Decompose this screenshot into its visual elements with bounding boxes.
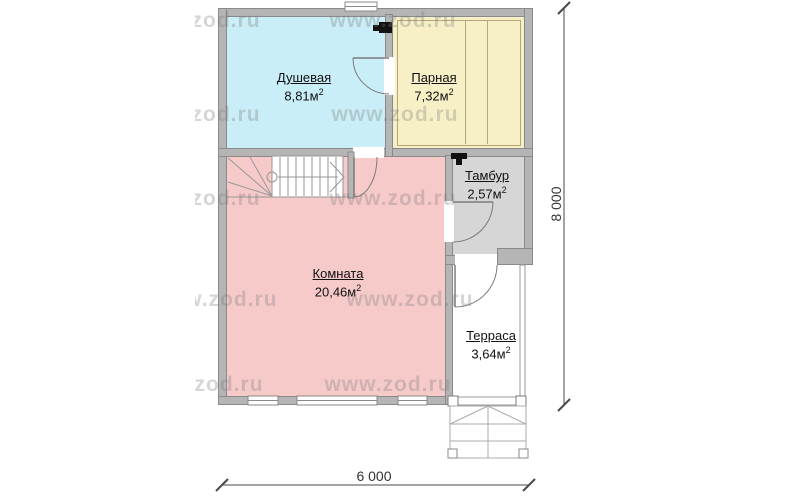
door-opening-living-vestibule xyxy=(444,201,454,242)
wall-bottom xyxy=(218,396,453,405)
room-area: 8,81м2 xyxy=(244,85,364,103)
room-area: 7,32м2 xyxy=(374,85,494,103)
wall-top xyxy=(218,8,533,17)
step-post-icon xyxy=(519,449,528,458)
floor-plan: Душевая 8,81м2 Парная 7,32м2 Тамбур 2,57… xyxy=(0,0,795,496)
dim-tick-icon xyxy=(523,479,535,491)
room-name: Тамбур xyxy=(437,168,537,183)
room-name: Парная xyxy=(374,70,494,85)
entrance-steps xyxy=(448,406,528,458)
label-vestibule: Тамбур 2,57м2 xyxy=(437,168,537,201)
dim-tick-icon xyxy=(558,399,570,411)
wall-vestibule-corner xyxy=(497,248,533,265)
room-name: Терраса xyxy=(441,328,541,343)
room-name: Душевая xyxy=(244,70,364,85)
room-area: 3,64м2 xyxy=(441,343,541,361)
label-shower: Душевая 8,81м2 xyxy=(244,70,364,103)
door-opening-living-shower xyxy=(353,147,384,158)
wall-right xyxy=(524,8,533,265)
label-steam: Парная 7,32м2 xyxy=(374,70,494,103)
dim-tick-icon xyxy=(558,2,570,14)
room-area: 2,57м2 xyxy=(437,183,537,201)
room-name: Комната xyxy=(278,266,398,281)
label-terrace: Терраса 3,64м2 xyxy=(441,328,541,361)
label-living: Комната 20,46м2 xyxy=(278,266,398,299)
step-post-icon xyxy=(448,449,457,458)
dimension-width-label: 6 000 xyxy=(324,468,424,484)
dimension-height-label: 8 000 xyxy=(548,154,564,254)
room-area: 20,46м2 xyxy=(278,281,398,299)
door-opening-vestibule-terrace xyxy=(455,254,497,266)
wall-left xyxy=(218,8,227,405)
dim-tick-icon xyxy=(216,479,228,491)
